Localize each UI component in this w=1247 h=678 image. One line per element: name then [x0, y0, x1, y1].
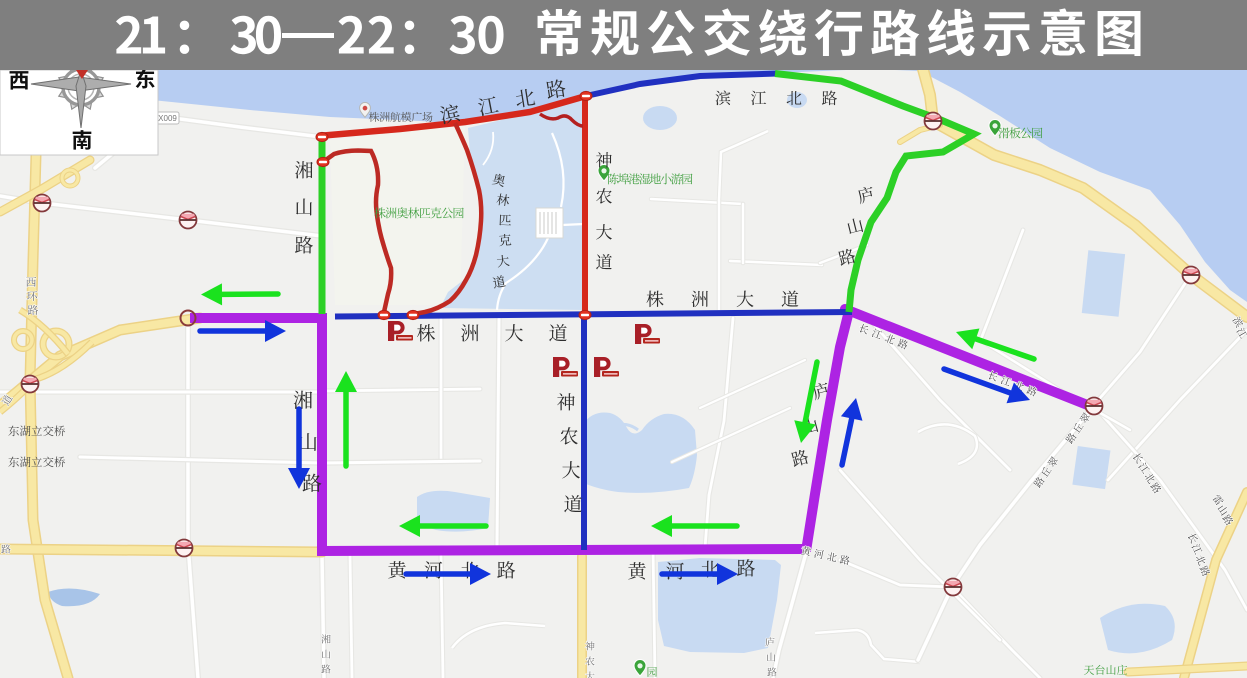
- svg-text:X009: X009: [158, 114, 177, 123]
